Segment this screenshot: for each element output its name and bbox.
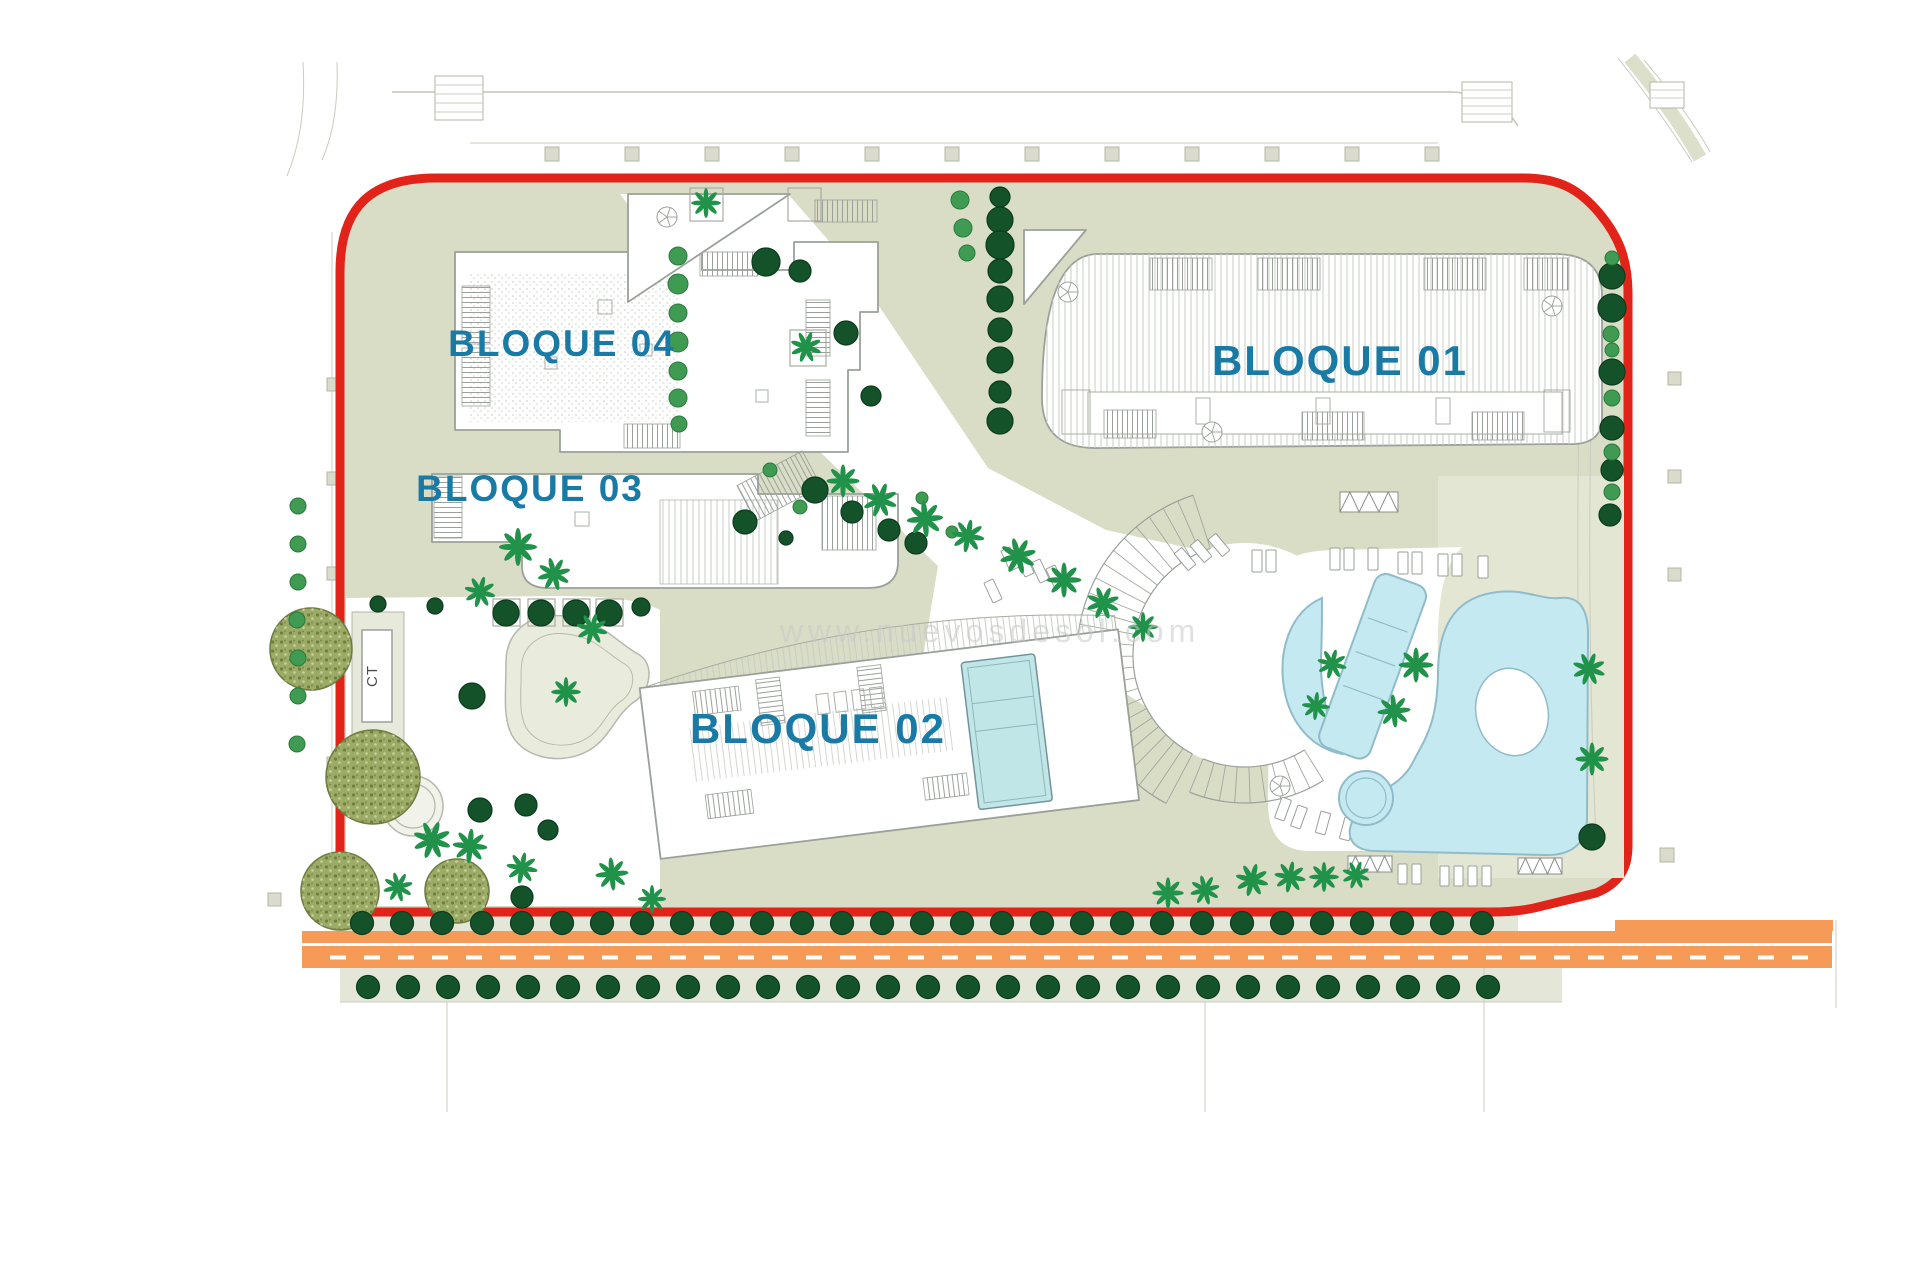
street-tree-icon — [557, 976, 580, 999]
street-square — [625, 147, 639, 161]
street-tree-icon — [757, 976, 780, 999]
street-tree-icon — [1111, 912, 1134, 935]
tree-icon — [632, 598, 650, 616]
street-tree-icon — [711, 912, 734, 935]
street-tree-icon — [1397, 976, 1420, 999]
street-tree-icon — [637, 976, 660, 999]
sun-lounger — [1452, 554, 1462, 576]
spiral-stair-icon — [657, 207, 677, 227]
site-plan-svg: CT BLOQUE 01 BLOQUE 02 BLOQUE 03 BLOQUE … — [0, 0, 1920, 1280]
street-tree-icon — [1277, 976, 1300, 999]
tree-icon — [988, 318, 1012, 342]
tree-icon — [669, 362, 687, 380]
watermark: www.nuevosdesol.com — [779, 613, 1200, 649]
street-square — [1105, 147, 1119, 161]
olive-tree-icon — [270, 608, 352, 690]
tree-icon — [951, 191, 969, 209]
street-tree-icon — [1311, 912, 1334, 935]
tree-icon — [987, 347, 1013, 373]
tree-icon — [1599, 504, 1621, 526]
street-tree-icon — [877, 976, 900, 999]
spiral-stair-icon — [1058, 282, 1078, 302]
street-square — [1345, 147, 1359, 161]
street-tree-icon — [357, 976, 380, 999]
tree-icon — [789, 260, 811, 282]
street-square — [1668, 470, 1681, 483]
street-tree-icon — [1437, 976, 1460, 999]
tree-icon — [289, 612, 305, 628]
street-tree-icon — [671, 912, 694, 935]
crosswalk-topleft — [435, 76, 483, 120]
street-tree-icon — [1237, 976, 1260, 999]
street-tree-icon — [471, 912, 494, 935]
street-tree-icon — [437, 976, 460, 999]
street-tree-icon — [917, 976, 940, 999]
crosswalk-topright — [1462, 82, 1512, 122]
street-tree-icon — [751, 912, 774, 935]
street-tree-icon — [1431, 912, 1454, 935]
sun-lounger — [1398, 864, 1407, 884]
sun-lounger — [1330, 548, 1340, 570]
spiral-stair-icon — [1202, 422, 1222, 442]
street-square — [785, 147, 799, 161]
street-square — [705, 147, 719, 161]
tree-icon — [1600, 416, 1624, 440]
road-widening-right — [1615, 920, 1833, 931]
street-tree-icon — [1351, 912, 1374, 935]
site-plan-page: CT BLOQUE 01 BLOQUE 02 BLOQUE 03 BLOQUE … — [0, 0, 1920, 1280]
tree-icon — [290, 650, 306, 666]
street-square — [1668, 372, 1681, 385]
tree-icon — [1598, 294, 1626, 322]
tree-icon — [370, 596, 386, 612]
street-tree-icon — [591, 912, 614, 935]
street-tree-icon — [391, 912, 414, 935]
tree-icon — [793, 500, 807, 514]
tree-icon — [1599, 359, 1625, 385]
street-square — [545, 147, 559, 161]
palm-tree-icon — [691, 188, 721, 218]
tree-icon — [528, 600, 554, 626]
label-bloque-02: BLOQUE 02 — [690, 705, 946, 752]
sun-lounger — [1440, 866, 1449, 886]
tree-icon — [669, 389, 687, 407]
palm-tree-icon — [1399, 648, 1434, 683]
street-tree-icon — [797, 976, 820, 999]
street-tree-icon — [1151, 912, 1174, 935]
pergola-icon — [1518, 858, 1562, 874]
tree-icon — [1604, 444, 1620, 460]
palm-tree-icon — [1047, 563, 1082, 598]
street-square — [1025, 147, 1039, 161]
tree-icon — [916, 492, 928, 504]
street-tree-icon — [831, 912, 854, 935]
tree-icon — [752, 248, 780, 276]
street-tree-icon — [1271, 912, 1294, 935]
tree-icon — [468, 798, 492, 822]
label-bloque-03: BLOQUE 03 — [416, 468, 644, 509]
street-tree-icon — [597, 976, 620, 999]
street-tree-icon — [1471, 912, 1494, 935]
street-tree-icon — [1231, 912, 1254, 935]
street-tree-icon — [911, 912, 934, 935]
street-curve-topleft-2 — [322, 62, 337, 160]
tree-icon — [802, 477, 828, 503]
street-tree-icon — [517, 976, 540, 999]
street-square — [1660, 848, 1674, 862]
street-tree-icon — [951, 912, 974, 935]
ct-label: CT — [364, 665, 381, 687]
street-tree-icon — [1157, 976, 1180, 999]
street-tree-icon — [1191, 912, 1214, 935]
tree-icon — [861, 386, 881, 406]
street-square — [268, 893, 281, 906]
street-tree-icon — [477, 976, 500, 999]
street-tree-icon — [351, 912, 374, 935]
sun-lounger — [1252, 550, 1262, 572]
tree-icon — [563, 600, 589, 626]
street-tree-icon — [791, 912, 814, 935]
street-tree-icon — [1077, 976, 1100, 999]
street-tree-icon — [677, 976, 700, 999]
street-tree-icon — [997, 976, 1020, 999]
tree-icon — [990, 187, 1010, 207]
sun-lounger — [1368, 548, 1378, 570]
street-square — [1425, 147, 1439, 161]
tree-icon — [1601, 459, 1623, 481]
tree-icon — [987, 207, 1013, 233]
tree-icon — [669, 304, 687, 322]
palm-tree-icon — [551, 677, 581, 707]
street-curve-topleft-1 — [287, 62, 304, 176]
tree-icon — [515, 794, 537, 816]
tree-icon — [290, 574, 306, 590]
street-tree-icon — [551, 912, 574, 935]
road-layer — [302, 910, 1836, 1112]
tree-icon — [538, 820, 558, 840]
tree-icon — [290, 688, 306, 704]
tree-icon — [1604, 390, 1620, 406]
street-tree-icon — [1031, 912, 1054, 935]
street-tree-icon — [1317, 976, 1340, 999]
spiral-stair-icon — [1270, 776, 1290, 796]
road-upper-lane — [302, 931, 1832, 943]
street-tree-icon — [397, 976, 420, 999]
olive-texture — [326, 730, 420, 824]
tree-icon — [905, 532, 927, 554]
street-square — [1668, 568, 1681, 581]
sun-lounger — [1412, 864, 1421, 884]
street-tree-icon — [1197, 976, 1220, 999]
tree-icon — [763, 463, 777, 477]
street-square — [945, 147, 959, 161]
tree-icon — [988, 259, 1012, 283]
street-tree-icon — [871, 912, 894, 935]
street-tree-icon — [837, 976, 860, 999]
street-tree-icon — [1477, 976, 1500, 999]
tree-icon — [1603, 326, 1619, 342]
tree-icon — [959, 245, 975, 261]
street-square — [1185, 147, 1199, 161]
tree-icon — [427, 598, 443, 614]
street-tree-icon — [991, 912, 1014, 935]
sun-lounger — [1438, 554, 1448, 576]
label-bloque-04: BLOQUE 04 — [448, 323, 676, 364]
pergola-icon — [1340, 492, 1398, 512]
street-tree-icon — [511, 912, 534, 935]
tree-icon — [841, 501, 863, 523]
street-tree-icon — [717, 976, 740, 999]
olive-tree-icon — [326, 730, 420, 824]
tree-icon — [1579, 824, 1605, 850]
tree-icon — [1605, 343, 1619, 357]
tree-icon — [878, 519, 900, 541]
street-square — [865, 147, 879, 161]
street-tree-icon — [1117, 976, 1140, 999]
palm-tree-icon — [1576, 743, 1609, 776]
tree-icon — [987, 408, 1013, 434]
sun-lounger — [1468, 866, 1477, 886]
street-tree-icon — [957, 976, 980, 999]
spiral-stair-icon — [1542, 296, 1562, 316]
tree-icon — [290, 498, 306, 514]
tree-icon — [986, 231, 1014, 259]
tree-icon — [987, 286, 1013, 312]
sun-lounger — [1482, 866, 1491, 886]
olive-texture — [270, 608, 352, 690]
tree-icon — [493, 600, 519, 626]
tree-icon — [671, 416, 687, 432]
palm-tree-icon — [1152, 877, 1183, 908]
street-tree-icon — [1037, 976, 1060, 999]
tree-icon — [511, 886, 533, 908]
palm-tree-icon — [499, 528, 537, 566]
sun-lounger — [1398, 552, 1408, 574]
palm-tree-icon — [638, 885, 666, 913]
street-tree-icon — [1071, 912, 1094, 935]
street-edge-top — [392, 92, 1518, 126]
sun-lounger — [1266, 550, 1276, 572]
tree-icon — [779, 531, 793, 545]
tree-icon — [669, 247, 687, 265]
tree-icon — [954, 219, 972, 237]
label-bloque-01: BLOQUE 01 — [1212, 337, 1468, 384]
street-square — [1265, 147, 1279, 161]
sun-lounger — [1344, 548, 1354, 570]
tree-icon — [289, 736, 305, 752]
sun-lounger — [1412, 552, 1422, 574]
tree-icon — [1605, 251, 1619, 265]
sun-lounger — [1454, 866, 1463, 886]
tree-icon — [989, 381, 1011, 403]
palm-tree-icon — [827, 465, 860, 498]
tree-icon — [1599, 263, 1625, 289]
entrance-ramp — [815, 200, 877, 222]
tree-icon — [668, 274, 688, 294]
street-tree-icon — [1391, 912, 1414, 935]
tree-icon — [1604, 484, 1620, 500]
tree-icon — [459, 683, 485, 709]
tree-icon — [290, 536, 306, 552]
street-tree-icon — [1357, 976, 1380, 999]
street-tree-icon — [431, 912, 454, 935]
crosswalk-right — [1650, 82, 1684, 108]
street-tree-icon — [631, 912, 654, 935]
tree-icon — [733, 510, 757, 534]
round-pool — [1339, 771, 1393, 825]
tree-icon — [834, 321, 858, 345]
sun-lounger — [1478, 556, 1488, 578]
